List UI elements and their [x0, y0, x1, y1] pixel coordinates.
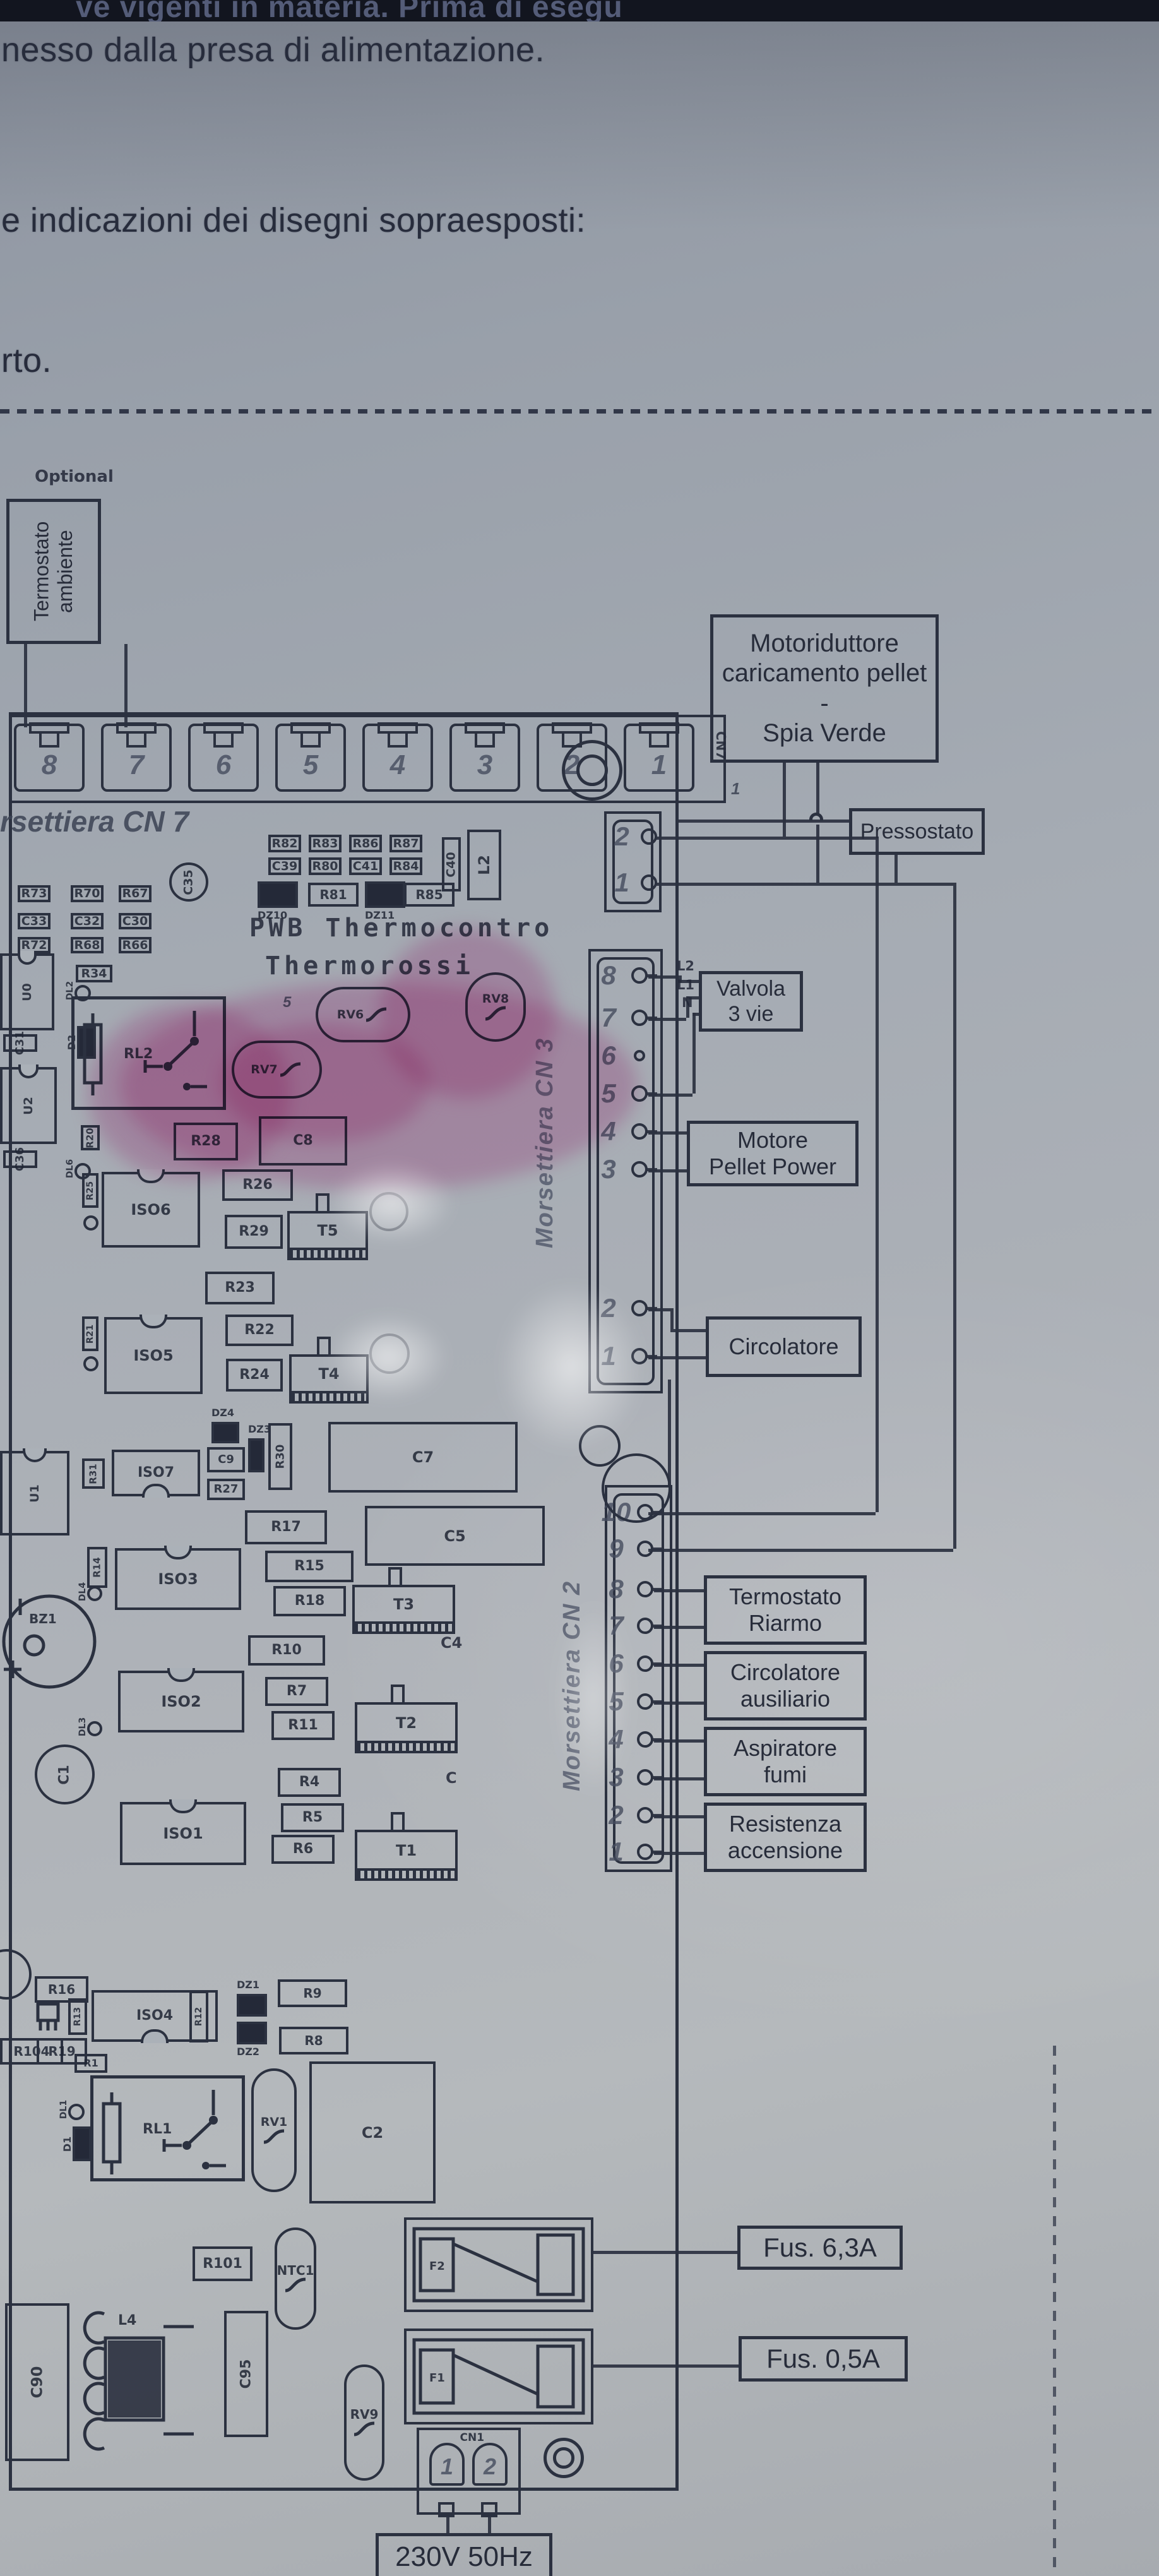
silkscreen-label: R6 [293, 1842, 313, 1856]
silkscreen-label: C2 [362, 2125, 383, 2140]
diagram-text-c4: C4 [441, 1635, 462, 1650]
callout-aspiratore-fumi: Aspiratorefumi [704, 1727, 867, 1796]
comp-iso5: ISO5 [104, 1317, 203, 1394]
callout-line: ausiliario [740, 1686, 830, 1712]
comp-c33: C33 [18, 913, 51, 929]
callout-pressostato: Pressostato [849, 808, 985, 855]
silkscreen-label: R34 [81, 968, 107, 980]
diode-label: DZ10 [258, 910, 287, 921]
silkscreen-label: C32 [74, 915, 100, 927]
comp-r21: R21 [82, 1316, 98, 1351]
photo-glare [499, 1282, 644, 1452]
comp-circle [83, 1356, 98, 1371]
comp-r68: R68 [71, 937, 104, 953]
diagram-text-l2: L2 [677, 960, 694, 973]
cn2-pin-stub [653, 1547, 663, 1551]
comp-r5: R5 [281, 1803, 344, 1832]
cn1-leg [481, 2502, 497, 2517]
callout-valvola-3-vie: Valvola3 vie [699, 971, 803, 1032]
comp-t3: T3 [352, 1585, 455, 1624]
silkscreen-label: C1 [57, 1765, 71, 1784]
cn2-terminal-pin [637, 1844, 653, 1860]
callout-line: fumi [764, 1762, 807, 1788]
cn3-terminal-number: 3 [601, 1154, 615, 1184]
comp-r25: R25 [82, 1173, 98, 1208]
pink-highlighter-mark [379, 928, 556, 1099]
silkscreen-label: F1 [429, 2373, 445, 2384]
comp-t1-stub [391, 1812, 405, 1832]
comp-r8: R8 [279, 2027, 348, 2054]
silkscreen-label: RV1 [261, 2116, 288, 2128]
diagram-text-optional: Optional [35, 468, 114, 485]
silkscreen-label: T5 [317, 1223, 338, 1238]
led-label: DL1 [59, 2100, 68, 2119]
callout-line: Pressostato [860, 819, 974, 844]
cn2-pin-stub [653, 1588, 663, 1591]
comp-c40: C40 [442, 837, 461, 891]
comp-r4: R4 [278, 1768, 341, 1797]
diagram-text-rsettiera-cn-7: rsettiera CN 7 [0, 807, 189, 836]
cn7-terminal-number: 5 [303, 749, 318, 781]
callout-circolatore-ausiliario: Circolatoreausiliario [704, 1651, 867, 1720]
cn2-terminal-pin [637, 1655, 653, 1672]
callout-line: accensione [728, 1837, 843, 1864]
cn3-pin-stub [647, 1168, 657, 1171]
silkscreen-label: C41 [353, 861, 378, 873]
silkscreen-label: R14 [93, 1557, 102, 1577]
comp-circle [602, 1453, 671, 1523]
silkscreen-label: BZ1 [29, 1613, 57, 1625]
diagram-text-c: C [446, 1770, 457, 1786]
silkscreen-label: R5 [302, 1811, 323, 1825]
silkscreen-label: ISO1 [163, 1826, 203, 1841]
callout-line: Riarmo [749, 1610, 822, 1637]
cn3-pin-stub [647, 1017, 657, 1020]
silkscreen-label: R11 [288, 1719, 318, 1732]
comp-r14: R14 [87, 1547, 107, 1588]
comp-c32: C32 [71, 913, 104, 929]
silkscreen-label: U2 [23, 1097, 35, 1115]
callout-line: Termostato [729, 1583, 841, 1610]
callout-line: Fus. 6,3A [763, 2232, 877, 2263]
cap-c1: C1 [35, 1744, 95, 1804]
silkscreen-label: C36 [15, 1147, 26, 1171]
callout-line: Spia Verde [763, 719, 886, 748]
callout-motoriduttore: Motoriduttorecaricamento pellet-Spia Ver… [710, 614, 939, 763]
silkscreen-label: R27 [214, 1484, 239, 1495]
wire-segment [895, 854, 898, 883]
callout-line: Resistenza [729, 1811, 841, 1837]
cn3-pin-stub [647, 974, 657, 977]
relay-rl1: RL1 [90, 2075, 245, 2181]
comp-t2: T2 [355, 1702, 458, 1743]
diode-dz4 [211, 1422, 239, 1443]
wire-hump [809, 813, 823, 821]
comp-u1: U1 [0, 1451, 69, 1535]
cn7-slot-notch-stem [126, 731, 146, 748]
silkscreen-label: ISO7 [138, 1466, 174, 1480]
callout-line: 3 vie [728, 1001, 774, 1027]
cn2-terminal-pin [637, 1731, 653, 1748]
callout-fus-6-3a: Fus. 6,3A [737, 2226, 903, 2270]
diode-label: DZ2 [237, 2047, 259, 2057]
silkscreen-label: L4 [118, 2314, 136, 2328]
comp-r11: R11 [271, 1711, 335, 1740]
comp-r13: R13 [68, 1998, 87, 2035]
led-dl1 [68, 2104, 85, 2120]
silkscreen-label: R23 [225, 1281, 255, 1295]
cn7-slot-notch-stem [649, 731, 669, 748]
cn1-leg [438, 2502, 455, 2517]
cn2-pin-stub [653, 1738, 663, 1741]
comp-t5-stub [316, 1193, 330, 1213]
comp-t3-stub [388, 1567, 402, 1587]
comp-r34: R34 [76, 965, 112, 982]
silkscreen-label: R30 [275, 1445, 286, 1469]
silkscreen-label: C95 [239, 2359, 253, 2389]
silkscreen-label: R72 [21, 939, 47, 951]
cn2-terminal-pin [637, 1807, 653, 1823]
photo-glare [328, 1313, 448, 1402]
callout-line: ambiente [54, 530, 78, 613]
buzzer-bz1: BZ1 [1, 1594, 97, 1690]
callout-line: caricamento pellet [722, 659, 927, 688]
comp-r73: R73 [18, 885, 51, 902]
silkscreen-label: R84 [393, 861, 419, 873]
wire-segment [692, 1013, 699, 1016]
silkscreen-label: R31 [89, 1464, 98, 1484]
cn-top-terminal-number: 1 [614, 868, 629, 898]
comp-r84: R84 [389, 857, 422, 875]
silkscreen-label: R29 [239, 1225, 269, 1239]
callout-line: Circolatore [730, 1659, 840, 1686]
diagram-text-1: 1 [731, 780, 740, 797]
callout-line: - [820, 689, 828, 719]
mounting-hole-inner [553, 2447, 574, 2468]
comp-t2-stub [391, 1685, 405, 1705]
callout-line: Pellet Power [709, 1154, 836, 1180]
cn2-pin-stub [653, 1851, 663, 1854]
comp-u0: U0 [0, 953, 54, 1030]
manual-page-photo: ve vigenti in materia. Prima di esegu ne… [0, 0, 1159, 2576]
cn7-terminal-number: 4 [390, 749, 405, 781]
silkscreen-label: F2 [429, 2261, 445, 2272]
comp-r82: R82 [268, 835, 301, 852]
comp-r31: R31 [82, 1458, 105, 1489]
silkscreen-label: R86 [352, 838, 378, 850]
comp-r10: R10 [248, 1635, 325, 1666]
cn7-slot-notch-stem [388, 731, 408, 748]
silkscreen-label: R66 [122, 939, 148, 951]
comp-r18: R18 [273, 1586, 346, 1616]
comp-r27: R27 [207, 1479, 245, 1500]
cn7-terminal-number: 8 [42, 749, 57, 781]
silkscreen-label: R101 [203, 2257, 242, 2271]
comp-r1: R1 [74, 2054, 107, 2073]
cn3-pin-stub [647, 1092, 657, 1095]
cn2-terminal-pin [637, 1618, 653, 1634]
comp-c41: C41 [349, 857, 382, 875]
wire-segment [816, 825, 819, 883]
silkscreen-label: R87 [393, 838, 419, 850]
diode-dz3 [248, 1438, 264, 1472]
cn3-terminal-pin [631, 1123, 648, 1140]
silkscreen-label: C7 [412, 1450, 434, 1465]
diode-dz2 [237, 2022, 267, 2044]
callout-fus-0-5a: Fus. 0,5A [739, 2336, 908, 2382]
led-dl3 [87, 1721, 102, 1736]
silkscreen-label: L2 [477, 855, 492, 875]
comp-r80: R80 [309, 857, 342, 875]
comp-c39: C39 [268, 857, 301, 875]
silkscreen-label: ISO3 [158, 1571, 198, 1587]
silkscreen-label: R18 [295, 1594, 325, 1608]
callout-termostato-ambiente: Termostatoambiente [6, 499, 101, 644]
silkscreen-label: C9 [218, 1454, 234, 1465]
cn1-terminal-number: 2 [484, 2454, 496, 2480]
wire-segment [593, 2364, 739, 2368]
silkscreen-label: R10 [271, 1643, 302, 1657]
silkscreen-label: R22 [244, 1323, 275, 1337]
silkscreen-label: C40 [446, 852, 458, 877]
comp-r30: R30 [268, 1423, 292, 1490]
comp-r7: R7 [265, 1677, 328, 1706]
cn7-terminal-number: 3 [477, 749, 492, 781]
silkscreen-label: T1 [396, 1843, 417, 1858]
cap-c35: C35 [169, 862, 208, 902]
comp-ntc1: NTC1 [275, 2227, 316, 2330]
silkscreen-label: U1 [29, 1484, 41, 1503]
callout-line: Circolatore [728, 1333, 838, 1360]
comp-c5: C5 [365, 1506, 545, 1566]
cn7-slot-notch-stem [475, 731, 495, 748]
comp-t3-hatch [352, 1621, 455, 1634]
diode-label: DZ4 [211, 1408, 234, 1418]
cn7-slot-notch-stem [300, 731, 321, 748]
comp-r12: R12 [189, 1991, 208, 2042]
diode-label: D1 [62, 2136, 73, 2151]
cn-top-terminal-pin [641, 874, 657, 891]
comp-r17: R17 [245, 1510, 327, 1544]
silkscreen-label: T3 [393, 1597, 414, 1612]
silkscreen-label: R4 [299, 1775, 319, 1789]
cn3-terminal-pin [634, 1050, 645, 1061]
silkscreen-label: C33 [21, 915, 47, 927]
callout-line: Motore [737, 1127, 808, 1154]
comp-r23: R23 [205, 1272, 275, 1304]
fuse-f2: F2 [404, 2217, 593, 2312]
comp-iso6: ISO6 [102, 1172, 200, 1248]
wire-segment [648, 1549, 953, 1552]
silkscreen-label: C35 [182, 869, 194, 895]
comp-t1-hatch [355, 1868, 458, 1881]
cn2-terminal-number: 2 [609, 1800, 623, 1830]
cn-top-terminal-pin [641, 828, 657, 845]
comp-r24: R24 [226, 1359, 283, 1392]
inductor-l4: L4 [79, 2301, 196, 2453]
diode-label: DZ1 [237, 1980, 259, 1990]
wire-segment [670, 1329, 706, 1332]
diagram-text-cn7: CN7 [715, 731, 727, 760]
cn3-terminal-pin [631, 967, 648, 984]
cn2-terminal-pin [637, 1541, 653, 1557]
comp-c90: C90 [5, 2303, 69, 2461]
callout-termostato-riarmo: TermostatoRiarmo [704, 1575, 867, 1645]
comp-c36: C36 [3, 1150, 37, 1168]
callout-line: Aspiratore [734, 1735, 837, 1762]
callout-resistenza-accensione: Resistenzaaccensione [704, 1803, 867, 1872]
cn2-pin-stub [653, 1776, 663, 1779]
silkscreen-label: R70 [74, 888, 100, 900]
diode-dz1 [237, 1994, 267, 2017]
wire-segment [668, 1380, 671, 1485]
silkscreen-label: C30 [122, 915, 148, 927]
cn2-terminal-number: 1 [609, 1837, 623, 1867]
wire-segment [679, 820, 849, 823]
comp-t1: T1 [355, 1830, 458, 1871]
silkscreen-label: R25 [86, 1181, 95, 1200]
wire-segment [648, 1512, 876, 1515]
cn3-terminal-number: 7 [601, 1003, 615, 1033]
callout-line: Termostato [30, 522, 54, 621]
diagram-text-l1: L1 [677, 979, 694, 992]
wire-segment [953, 883, 956, 1549]
diode-d1 [73, 2126, 92, 2161]
wire-segment [657, 883, 953, 886]
silkscreen-label: C5 [444, 1529, 465, 1544]
wire-segment [446, 2515, 449, 2533]
comp-rv9: RV9 [344, 2364, 384, 2481]
comp-u2: U2 [0, 1067, 57, 1144]
cn7-terminal-number: 6 [216, 749, 231, 781]
wire-segment [488, 2515, 491, 2533]
silkscreen-label: ISO5 [133, 1348, 173, 1363]
callout-line: 230V 50Hz [395, 2541, 533, 2573]
silkscreen-label: T2 [396, 1715, 417, 1731]
callout-power-230v: 230V 50Hz [376, 2533, 552, 2576]
cn3-pin-stub [647, 1130, 657, 1133]
comp-circle [83, 1215, 98, 1231]
callout-line: Motoriduttore [750, 629, 899, 659]
comp-r101: R101 [193, 2246, 253, 2281]
cn3-terminal-number: 8 [601, 960, 615, 991]
wire-segment [783, 763, 786, 837]
cn2-pin-stub [653, 1662, 663, 1666]
silkscreen-label: C39 [272, 861, 297, 873]
wire-segment [692, 1013, 696, 1094]
cn7-slot-notch-stem [213, 731, 234, 748]
callout-line: Fus. 0,5A [766, 2343, 880, 2375]
silkscreen-label: R20 [86, 1128, 95, 1148]
silkscreen-label: R80 [312, 861, 338, 873]
silkscreen-label: R83 [312, 838, 338, 850]
comp-c2: C2 [309, 2061, 436, 2203]
wire-segment [816, 763, 819, 814]
comp-r70: R70 [71, 885, 104, 902]
transistor [33, 2001, 62, 2033]
diode-dz11 [365, 881, 405, 908]
cn2-pin-stub [653, 1625, 663, 1628]
silkscreen-label: ISO6 [131, 1202, 170, 1217]
silkscreen-label: R16 [48, 1983, 75, 1996]
comp-rv1: RV1 [251, 2068, 297, 2192]
silkscreen-label: R19 [48, 2045, 75, 2058]
cn3-pin-stub [647, 1307, 657, 1310]
cn2-terminal-number: 9 [609, 1534, 623, 1564]
photo-glare [328, 1162, 455, 1244]
cn7-terminal-number: 1 [651, 749, 667, 781]
comp-c9: C9 [207, 1447, 245, 1472]
silkscreen-label: R7 [287, 1685, 307, 1698]
silkscreen-label: RL1 [143, 2123, 172, 2137]
comp-t2-hatch [355, 1741, 458, 1753]
comp-r87: R87 [389, 835, 422, 852]
wire-segment [593, 2251, 737, 2254]
wire-segment [876, 837, 879, 1512]
diode-label: DZ3 [248, 1424, 271, 1434]
silkscreen-label: NTC1 [277, 2264, 314, 2277]
cn-top-terminal-number: 2 [614, 821, 629, 852]
comp-c95: C95 [224, 2311, 268, 2437]
comp-t5-hatch [287, 1248, 368, 1260]
silkscreen-label: U0 [21, 983, 33, 1001]
cn3-pin-stub [647, 1355, 657, 1358]
diagram-text-n: N [682, 996, 693, 1010]
comp-r81: R81 [308, 883, 359, 907]
silkscreen-label: C90 [30, 2366, 45, 2398]
silkscreen-label: R73 [21, 888, 47, 900]
comp-r9: R9 [278, 1979, 347, 2007]
wire-segment [670, 1308, 674, 1329]
silkscreen-label: R67 [122, 888, 148, 900]
comp-l2: L2 [467, 830, 501, 900]
silkscreen-label: R21 [86, 1324, 95, 1343]
comp-c30: C30 [119, 913, 152, 929]
diode-label: DZ11 [365, 910, 395, 921]
silkscreen-label: R12 [194, 2007, 203, 2026]
photo-glare [556, 1604, 631, 1793]
comp-r67: R67 [119, 885, 152, 902]
comp-r6: R6 [271, 1835, 335, 1864]
silkscreen-label: R24 [239, 1368, 270, 1382]
cn2-terminal-pin [637, 1693, 653, 1710]
callout-line: Valvola [716, 976, 785, 1001]
silkscreen-label: R82 [271, 838, 297, 850]
cn3-terminal-pin [631, 1300, 648, 1316]
comp-r22: R22 [225, 1315, 294, 1346]
cn2-terminal-pin [637, 1581, 653, 1597]
cn2-pin-stub [653, 1814, 663, 1817]
comp-r83: R83 [309, 835, 342, 852]
silkscreen-label: R85 [415, 888, 443, 901]
comp-c7: C7 [328, 1422, 518, 1493]
silkscreen-label: ISO2 [161, 1694, 201, 1709]
cn7-slot-notch-stem [39, 731, 59, 748]
comp-c31: C31 [3, 1034, 37, 1052]
cn2-pin-stub [653, 1700, 663, 1703]
silkscreen-label: R9 [303, 1987, 321, 2000]
comp-r15: R15 [265, 1551, 354, 1582]
callout-circolatore: Circolatore [706, 1316, 862, 1377]
led-label: DL6 [66, 1159, 74, 1178]
silkscreen-label: R15 [294, 1559, 324, 1573]
comp-r66: R66 [119, 937, 152, 953]
wire-segment [657, 837, 876, 840]
silkscreen-label: R13 [73, 2007, 82, 2026]
led-label: DL3 [78, 1717, 87, 1736]
silkscreen-label: CN1 [460, 2433, 485, 2443]
comp-r86: R86 [349, 835, 382, 852]
